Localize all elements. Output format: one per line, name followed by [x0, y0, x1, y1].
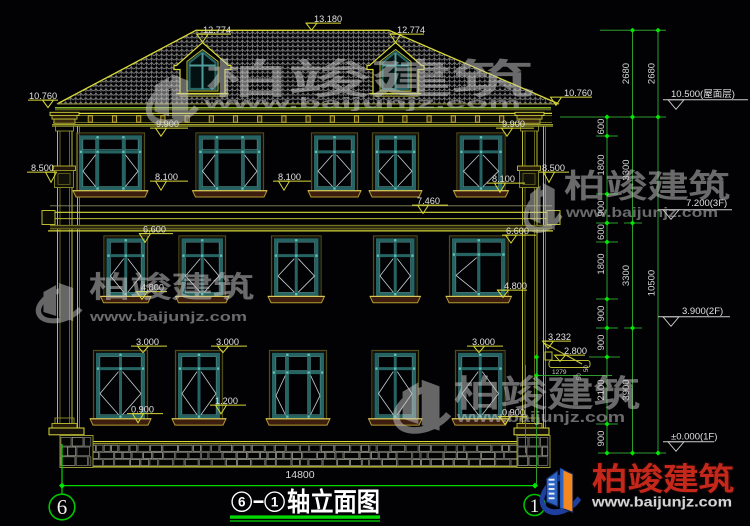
svg-text:2680: 2680: [647, 63, 658, 84]
svg-text:3.000: 3.000: [136, 337, 159, 347]
svg-text:6: 6: [57, 495, 68, 519]
svg-text:9.900: 9.900: [502, 119, 525, 129]
svg-text:10.760: 10.760: [564, 88, 592, 98]
svg-text:0.900: 0.900: [131, 405, 154, 415]
svg-text:±0.000(1F): ±0.000(1F): [671, 432, 717, 443]
svg-text:8.100: 8.100: [155, 172, 178, 182]
svg-text:1: 1: [530, 496, 540, 517]
svg-text:3.232: 3.232: [548, 332, 571, 342]
svg-text:1800: 1800: [596, 253, 607, 274]
svg-text:3.000: 3.000: [216, 337, 239, 347]
svg-text:8.500: 8.500: [31, 163, 54, 173]
svg-text:6: 6: [238, 495, 246, 510]
svg-text:3.000: 3.000: [472, 337, 495, 347]
svg-text:50: 50: [584, 365, 590, 372]
svg-text:柏竣建筑: 柏竣建筑: [564, 168, 730, 204]
svg-text:600: 600: [596, 119, 607, 135]
svg-text:600: 600: [596, 224, 607, 240]
svg-text:2.800: 2.800: [564, 346, 587, 356]
svg-text:12.774: 12.774: [203, 25, 231, 35]
svg-text:2680: 2680: [621, 63, 632, 84]
svg-text:10.760: 10.760: [29, 91, 57, 101]
svg-text:12.774: 12.774: [397, 25, 425, 35]
svg-text:13.180: 13.180: [314, 14, 342, 24]
svg-text:8.100: 8.100: [278, 172, 301, 182]
svg-text:www.baijunjz.com: www.baijunjz.com: [456, 410, 625, 426]
svg-text:14800: 14800: [285, 469, 314, 481]
svg-text:www.baijunjz.com: www.baijunjz.com: [591, 494, 732, 510]
svg-text:4.800: 4.800: [504, 281, 527, 291]
svg-text:900: 900: [596, 306, 607, 322]
svg-text:8.500: 8.500: [542, 163, 565, 173]
svg-text:1: 1: [271, 495, 279, 510]
svg-text:3.900(2F): 3.900(2F): [682, 306, 723, 317]
svg-text:7.460: 7.460: [417, 196, 440, 206]
svg-text:8.100: 8.100: [492, 174, 515, 184]
svg-text:www.baijunjz.com: www.baijunjz.com: [89, 309, 247, 324]
svg-text:轴立面图: 轴立面图: [287, 487, 380, 517]
svg-text:www.baijunjz.com: www.baijunjz.com: [201, 96, 521, 112]
svg-text:900: 900: [596, 431, 607, 447]
svg-text:柏竣建筑: 柏竣建筑: [592, 462, 734, 497]
svg-text:6.600: 6.600: [506, 226, 529, 236]
svg-text:10.500(屋面层): 10.500(屋面层): [671, 89, 735, 100]
svg-text:3300: 3300: [621, 265, 632, 286]
svg-text:1.200: 1.200: [215, 396, 238, 406]
svg-text:900: 900: [596, 335, 607, 351]
svg-text:10500: 10500: [647, 270, 658, 296]
svg-text:6.600: 6.600: [143, 225, 166, 235]
svg-text:柏竣建筑: 柏竣建筑: [89, 270, 254, 304]
svg-text:柏竣建筑: 柏竣建筑: [454, 373, 640, 414]
svg-text:www.baijunjz.com: www.baijunjz.com: [565, 204, 718, 220]
